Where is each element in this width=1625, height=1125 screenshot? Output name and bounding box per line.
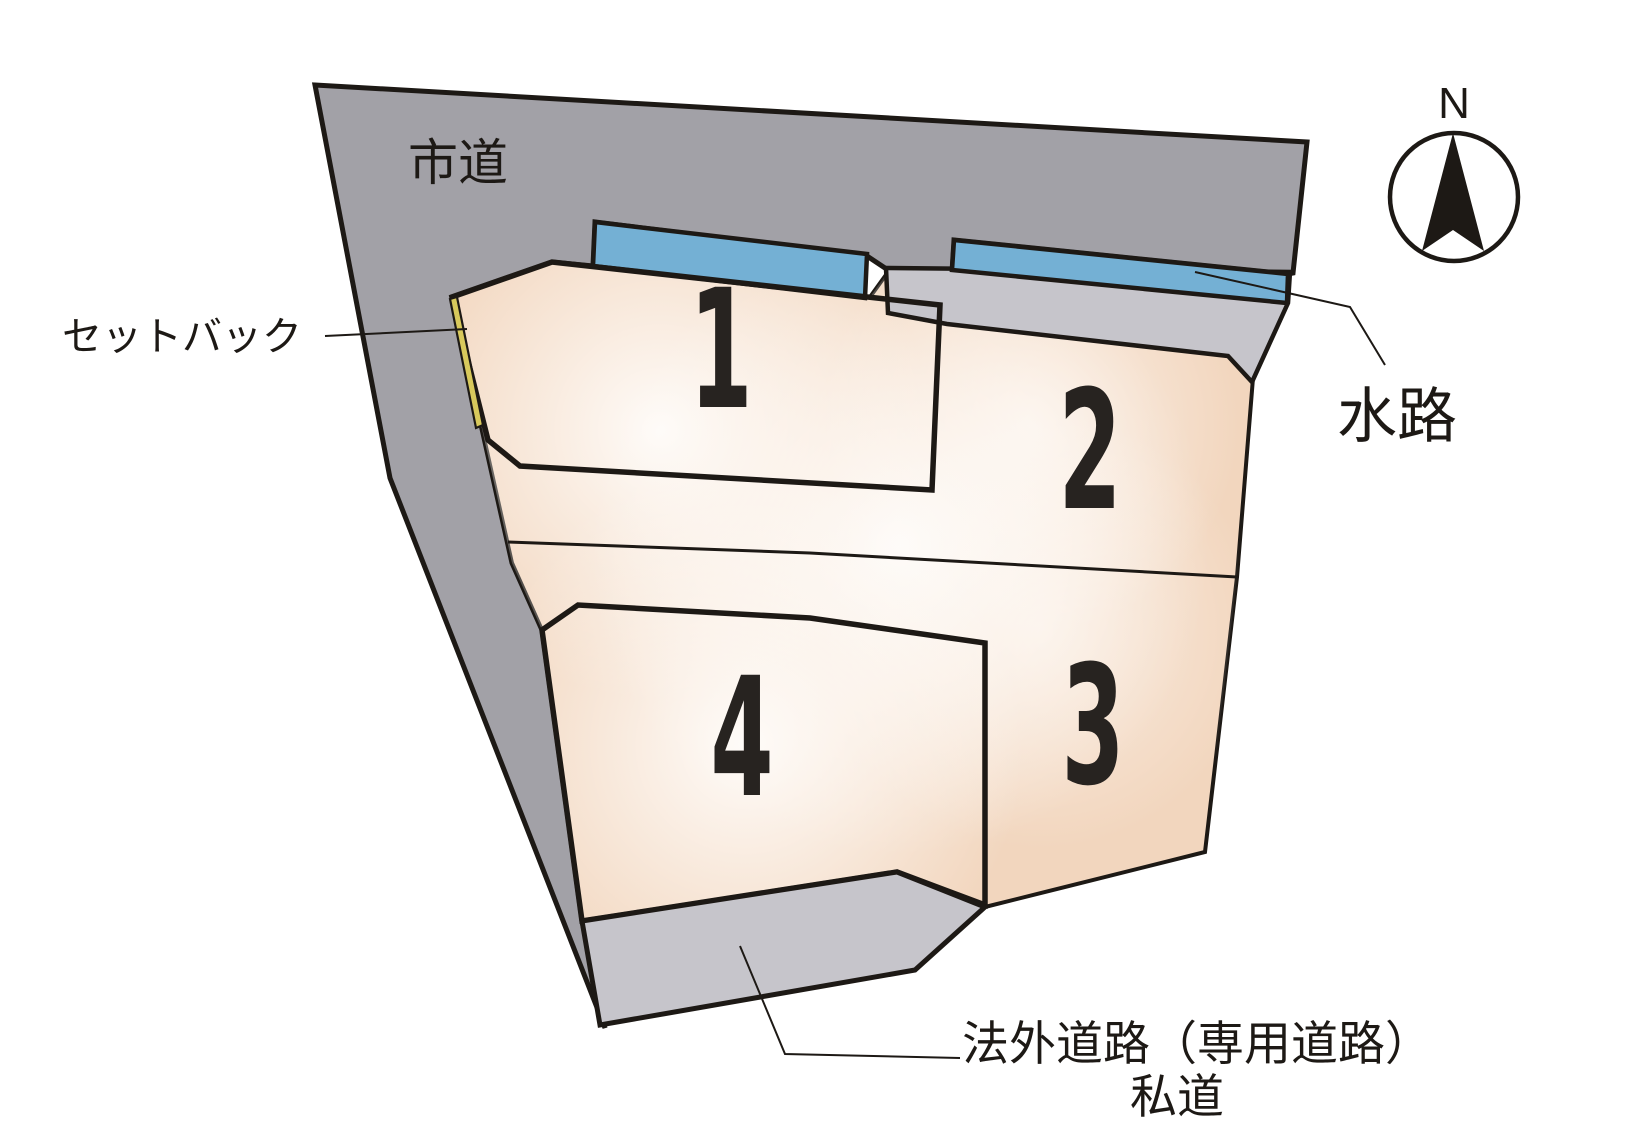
private-road-label: 法外道路（専用道路） xyxy=(962,1017,1432,1070)
setback-label: セットバック xyxy=(62,315,302,359)
city-road-label: 市道 xyxy=(408,135,508,191)
waterway-label: 水路 xyxy=(1337,383,1457,450)
lot-1-number: 1 xyxy=(689,255,752,447)
compass-north-label: N xyxy=(1438,79,1470,128)
compass: N xyxy=(1390,79,1518,261)
lot-2-number: 2 xyxy=(1058,356,1121,548)
private-road-sublabel: 私道 xyxy=(1130,1070,1224,1123)
lot-4-number: 4 xyxy=(710,643,773,835)
plot-map-diagram: N 市道 セットバック 水路 法外道路（専用道路） 私道 1 2 3 4 xyxy=(0,0,1625,1125)
lot-3-number: 3 xyxy=(1061,631,1124,823)
